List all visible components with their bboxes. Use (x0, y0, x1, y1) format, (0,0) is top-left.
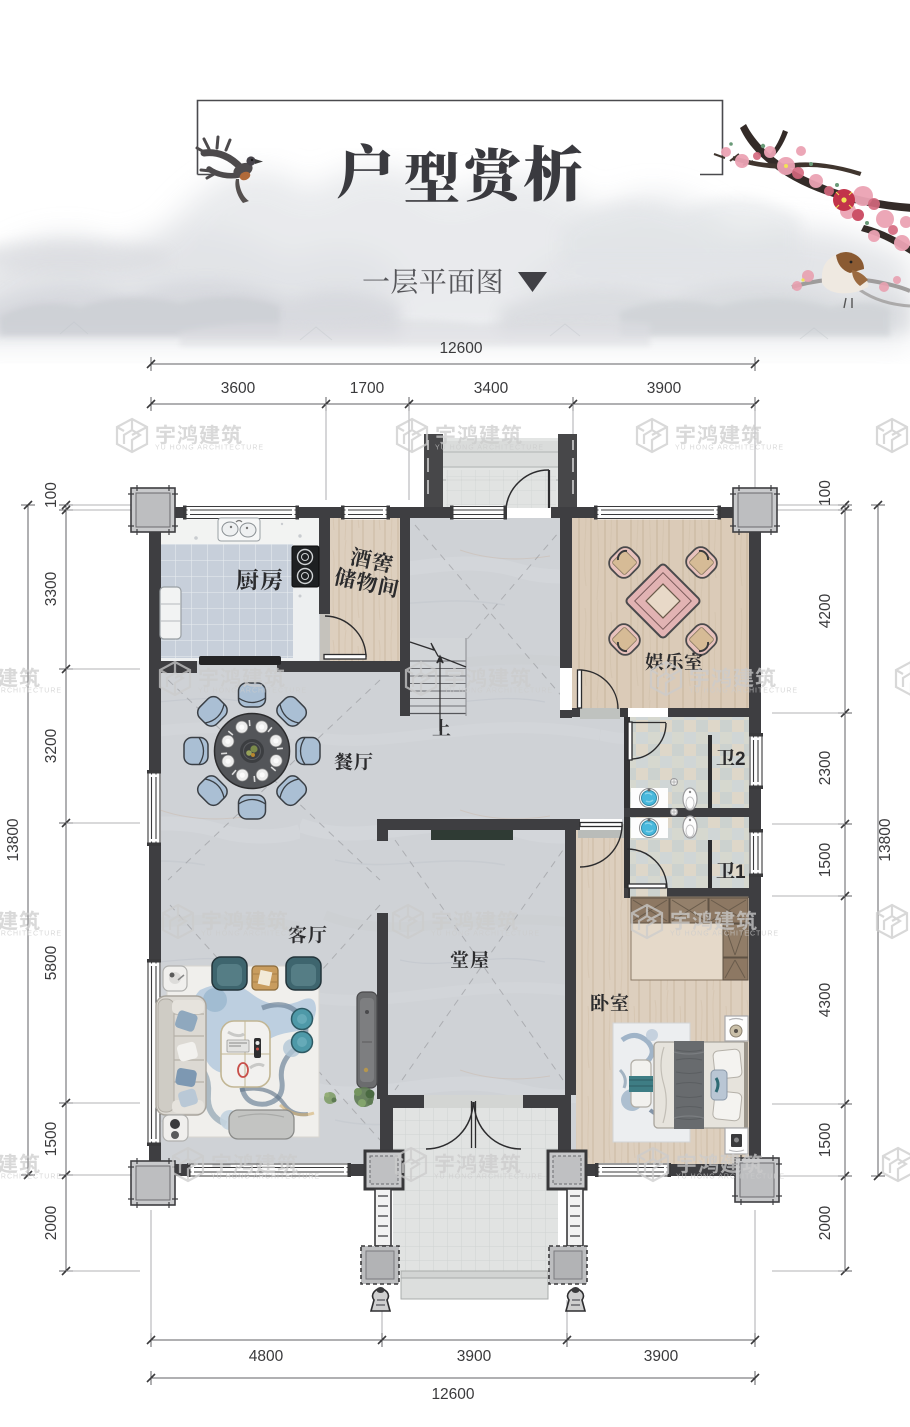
svg-text:100: 100 (817, 480, 834, 506)
svg-text:5800: 5800 (43, 945, 60, 980)
svg-text:2000: 2000 (43, 1205, 60, 1240)
svg-text:2: 2 (735, 749, 746, 770)
svg-text:3900: 3900 (644, 1348, 679, 1365)
svg-text:12600: 12600 (439, 340, 482, 357)
svg-text:12600: 12600 (431, 1386, 474, 1403)
svg-text:3300: 3300 (43, 571, 60, 606)
svg-text:13800: 13800 (5, 818, 22, 861)
svg-text:3600: 3600 (221, 380, 256, 397)
svg-text:1: 1 (735, 862, 746, 883)
svg-text:2300: 2300 (817, 750, 834, 785)
svg-text:4200: 4200 (817, 593, 834, 628)
svg-text:3400: 3400 (474, 380, 509, 397)
svg-text:3200: 3200 (43, 728, 60, 763)
svg-text:1500: 1500 (817, 1122, 834, 1157)
svg-text:2000: 2000 (817, 1205, 834, 1240)
svg-text:1500: 1500 (817, 842, 834, 877)
svg-text:4300: 4300 (817, 982, 834, 1017)
svg-text:13800: 13800 (877, 818, 894, 861)
svg-text:100: 100 (43, 482, 60, 508)
svg-text:1500: 1500 (43, 1121, 60, 1156)
svg-text:1700: 1700 (350, 380, 385, 397)
svg-text:4800: 4800 (249, 1348, 284, 1365)
svg-text:3900: 3900 (457, 1348, 492, 1365)
svg-text:3900: 3900 (647, 380, 682, 397)
